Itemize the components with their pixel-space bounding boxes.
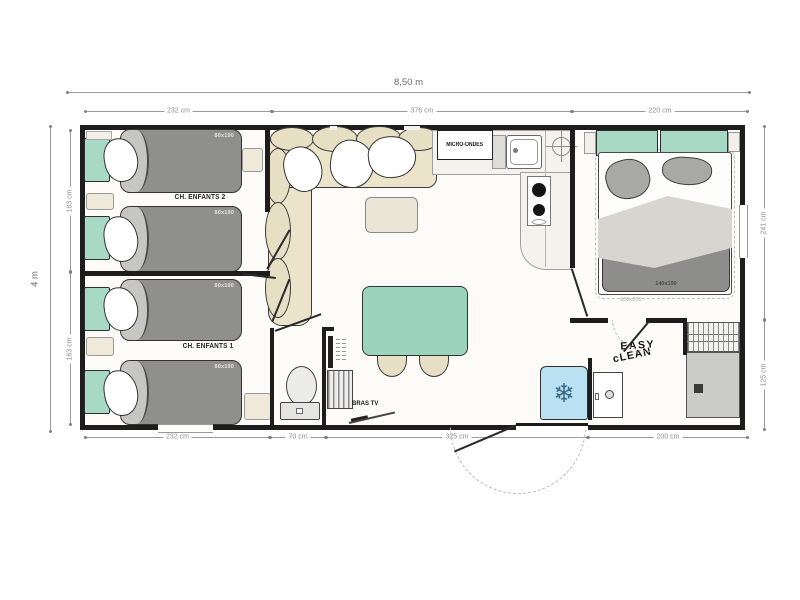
vanity-knob — [605, 390, 614, 399]
wall-bath-top-left — [570, 318, 608, 323]
bed-size-label: 80x190 — [214, 210, 234, 216]
master-bed-size-label: 140x190 — [655, 281, 676, 287]
bed-option-size-label: 160x200 — [620, 297, 641, 303]
radiator — [327, 370, 353, 409]
wall-wc-left — [270, 328, 274, 425]
sink-drain-dot — [513, 148, 518, 153]
shower-shelf-line — [687, 334, 740, 335]
floorplan-canvas: 8,50 m 4 m 232 cm 376 cm 220 cm 183 cm 1… — [0, 0, 800, 600]
ceiling-light-cross-v — [561, 131, 562, 162]
wall-fridge-vanity — [588, 358, 592, 420]
tv-screen — [328, 336, 333, 368]
wall-wc-right — [322, 328, 326, 425]
wall-wc-stub — [322, 327, 334, 331]
coffee-table — [365, 197, 418, 233]
toilet-flush-button — [296, 408, 303, 414]
window-master-bedroom — [739, 205, 748, 258]
snowflake-icon: ❄ — [553, 380, 575, 406]
nightstand — [86, 337, 114, 356]
shower-drain — [694, 384, 703, 393]
side-shelf — [244, 393, 271, 420]
toilet-bowl — [286, 366, 317, 406]
side-shelf — [242, 148, 263, 172]
wall-kitchen-master — [570, 130, 575, 268]
fridge: ❄ — [540, 366, 588, 420]
microwave-label: MICRO-ONDES — [437, 130, 493, 160]
wall-shower-left — [683, 318, 687, 355]
kids-room-2-label: CH. ENFANTS 2 — [154, 194, 246, 201]
tv-arm-label: BRAS TV — [352, 401, 378, 407]
wall-shelf — [86, 131, 112, 140]
nightstand — [584, 132, 596, 154]
shower-shelf-line — [687, 341, 740, 342]
kids-bed-2: 80x190 — [120, 206, 242, 272]
stove-burner — [532, 183, 546, 197]
kitchen-sink-drainer — [492, 135, 506, 169]
window-mullion-notch — [404, 126, 420, 130]
tv-vent — [336, 339, 340, 363]
wall-kids-living — [265, 130, 270, 212]
bed-size-label: 80x190 — [214, 283, 234, 289]
stove-knob — [532, 219, 546, 225]
nightstand — [86, 193, 114, 210]
nightstand — [728, 132, 740, 152]
kids-room-1-label: CH. ENFANTS 1 — [162, 343, 254, 350]
window-kids-room-1 — [158, 424, 213, 433]
window-mullion-notch — [330, 126, 337, 130]
bed-size-label: 80x190 — [214, 364, 234, 370]
kids-bed-4: 80x190 — [120, 360, 242, 425]
entrance-threshold — [516, 423, 588, 426]
stove-burner — [533, 204, 545, 216]
vanity-handle — [595, 393, 599, 400]
bed-size-label: 80x190 — [214, 133, 234, 139]
shower-shelf-unit — [687, 322, 740, 352]
dining-table — [362, 286, 468, 356]
wall-bath-top-right — [646, 318, 686, 323]
tv-vent — [342, 339, 346, 363]
